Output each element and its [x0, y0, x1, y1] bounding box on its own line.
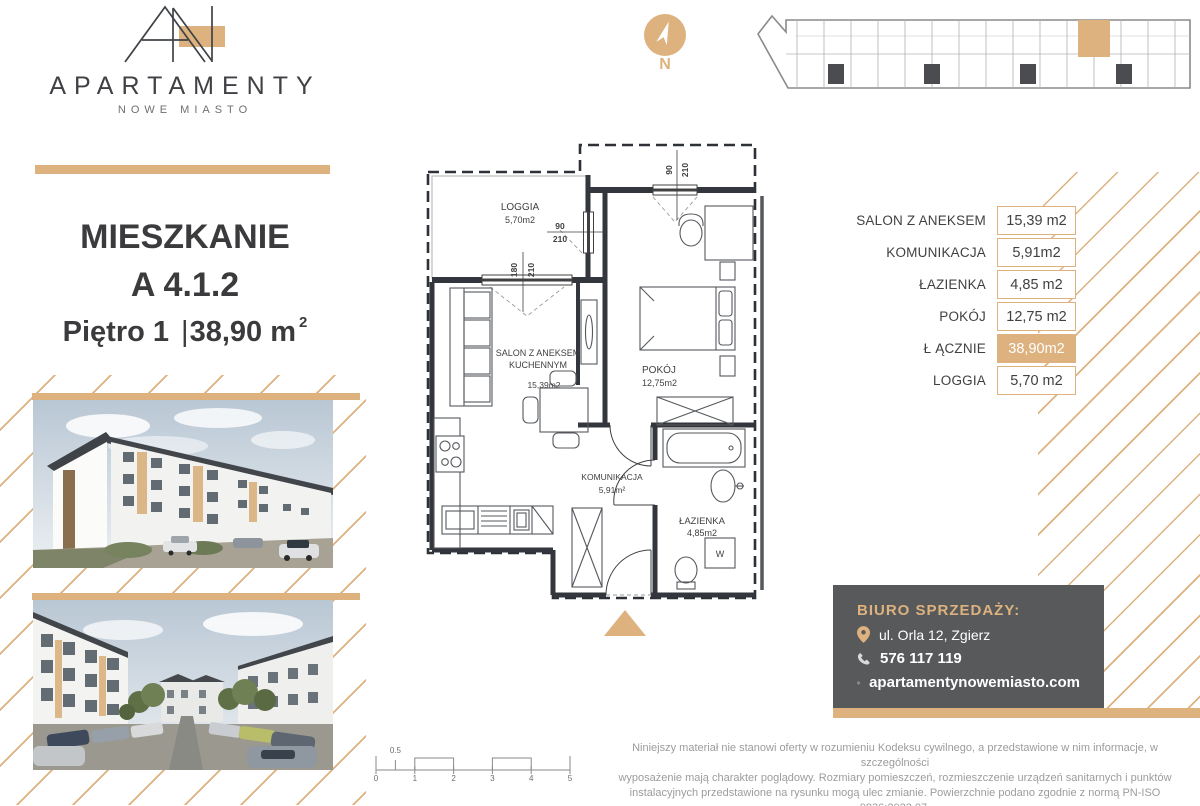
svg-text:0: 0 — [374, 774, 379, 782]
row-value: 5,91m2 — [997, 238, 1076, 267]
building-photo-1 — [33, 400, 333, 568]
area-table: SALON Z ANEKSEM 15,39 m2 KOMUNIKACJA 5,9… — [852, 206, 1076, 398]
brand-name: APARTAMENTY — [35, 72, 335, 101]
website-row[interactable]: apartamentynowemiasto.com — [857, 674, 1080, 691]
floor-label: Piętro 1 — [63, 316, 169, 348]
svg-text:1: 1 — [413, 774, 418, 782]
sofa — [450, 288, 492, 406]
building-photo-2 — [33, 600, 333, 770]
floor-and-area-line: Piętro 1|38,90 m2 — [30, 314, 340, 349]
brand-subtitle: NOWE MIASTO — [35, 104, 335, 116]
area-superscript: 2 — [299, 314, 307, 331]
listing-type-label: MIESZKANIE — [30, 218, 340, 257]
floor-plan: 180 210 90 210 90 210 — [420, 130, 770, 640]
globe-icon — [857, 676, 860, 690]
wardrobe-corridor — [572, 508, 602, 587]
svg-text:KUCHENNYM: KUCHENNYM — [509, 360, 567, 370]
table-row: KOMUNIKACJA 5,91m2 — [852, 238, 1076, 267]
sink — [711, 470, 744, 502]
svg-text:3: 3 — [490, 774, 495, 782]
building-key-plan — [726, 6, 1196, 96]
washing-machine: W — [705, 538, 735, 568]
office-website[interactable]: apartamentynowemiasto.com — [869, 674, 1080, 691]
wardrobe-bedroom — [657, 397, 733, 425]
svg-text:5,91m²: 5,91m² — [599, 485, 626, 495]
sales-office-panel: BIURO SPRZEDAŻY: ul. Orla 12, Zgierz 576… — [833, 585, 1104, 708]
svg-text:4: 4 — [529, 774, 534, 782]
kitchen — [434, 418, 553, 548]
row-label: LOGGIA — [852, 373, 997, 388]
svg-text:5: 5 — [568, 774, 573, 782]
lazienka-label: ŁAZIENKA — [679, 516, 726, 527]
svg-text:2: 2 — [451, 774, 456, 782]
separator: | — [181, 316, 189, 348]
svg-text:210: 210 — [526, 263, 536, 277]
loggia-label: LOGGIA — [501, 202, 540, 213]
door-swings — [606, 425, 655, 595]
photo1-gold-bar — [32, 393, 360, 400]
disclaimer-line: instalacyjnych przedstawione na rysunku … — [598, 786, 1192, 806]
entrance-marker-icon — [604, 610, 646, 636]
unit-number: A 4.1.2 — [30, 266, 340, 305]
legal-disclaimer: Niniejszy materiał nie stanowi oferty w … — [598, 741, 1192, 806]
row-label: SALON Z ANEKSEM — [852, 213, 997, 228]
table-row: POKÓJ 12,75 m2 — [852, 302, 1076, 331]
salon-label: SALON Z ANEKSEM — [496, 348, 581, 358]
flyer-page: APARTAMENTY NOWE MIASTO MIESZKANIE A 4.1… — [0, 0, 1200, 806]
row-label: POKÓJ — [852, 309, 997, 324]
disclaimer-line: wyposażenie mają charakter poglądowy. Ro… — [598, 771, 1192, 786]
svg-text:90: 90 — [555, 221, 565, 231]
phone-icon — [857, 652, 871, 666]
svg-text:180: 180 — [509, 263, 519, 277]
row-label: Ł ĄCZNIE — [852, 341, 997, 356]
row-value: 15,39 m2 — [997, 206, 1076, 235]
gold-divider-bar — [35, 165, 330, 174]
row-label: ŁAZIENKA — [852, 277, 997, 292]
table-row: ŁAZIENKA 4,85 m2 — [852, 270, 1076, 299]
bathtub — [663, 429, 745, 467]
svg-text:210: 210 — [680, 163, 690, 177]
row-label: KOMUNIKACJA — [852, 245, 997, 260]
toilet — [675, 557, 697, 589]
row-value: 4,85 m2 — [997, 270, 1076, 299]
svg-text:12,75m2: 12,75m2 — [642, 378, 677, 388]
location-pin-icon — [857, 626, 870, 643]
address-row: ul. Orla 12, Zgierz — [857, 626, 1080, 643]
svg-text:5,70m2: 5,70m2 — [505, 215, 535, 225]
total-area-value: 38,90 m — [190, 316, 296, 348]
table-row: LOGGIA 5,70 m2 — [852, 366, 1076, 395]
pokoj-label: POKÓJ — [642, 363, 676, 376]
svg-text:0.5: 0.5 — [390, 746, 402, 755]
phone-row[interactable]: 576 117 119 — [857, 650, 1080, 667]
total-area-badge: 38,90m2 — [997, 334, 1076, 363]
table-row-total: Ł ĄCZNIE 38,90m2 — [852, 334, 1076, 363]
highlighted-unit-marker — [1078, 20, 1110, 57]
komunikacja-label: KOMUNIKACJA — [581, 472, 643, 482]
office-phone[interactable]: 576 117 119 — [880, 650, 962, 667]
svg-text:4,85m2: 4,85m2 — [687, 528, 717, 538]
sales-office-title: BIURO SPRZEDAŻY: — [857, 602, 1080, 619]
tv-cabinet — [581, 300, 597, 364]
svg-text:210: 210 — [553, 234, 567, 244]
office-address: ul. Orla 12, Zgierz — [879, 627, 990, 643]
row-value: 12,75 m2 — [997, 302, 1076, 331]
bottom-gold-bar — [833, 708, 1200, 718]
desk-and-chair — [679, 206, 753, 260]
row-value: 5,70 m2 — [997, 366, 1076, 395]
photo2-gold-bar — [32, 593, 360, 600]
scale-bar: 0.5 0 1 2 3 4 5 — [368, 744, 580, 782]
dimension-labels: 180 210 90 210 90 210 — [509, 150, 690, 312]
bed — [640, 262, 735, 376]
disclaimer-line: Niniejszy materiał nie stanowi oferty w … — [598, 741, 1192, 771]
svg-text:W: W — [716, 549, 725, 559]
svg-text:90: 90 — [664, 165, 674, 175]
an-monogram-icon — [115, 4, 255, 66]
table-row: SALON Z ANEKSEM 15,39 m2 — [852, 206, 1076, 235]
room-labels: LOGGIA 5,70m2 SALON Z ANEKSEM KUCHENNYM … — [496, 202, 726, 538]
north-arrow-icon — [644, 14, 686, 56]
svg-text:15,39m2: 15,39m2 — [527, 380, 560, 390]
compass-north-label: N — [644, 56, 686, 74]
compass-icon — [644, 14, 686, 56]
